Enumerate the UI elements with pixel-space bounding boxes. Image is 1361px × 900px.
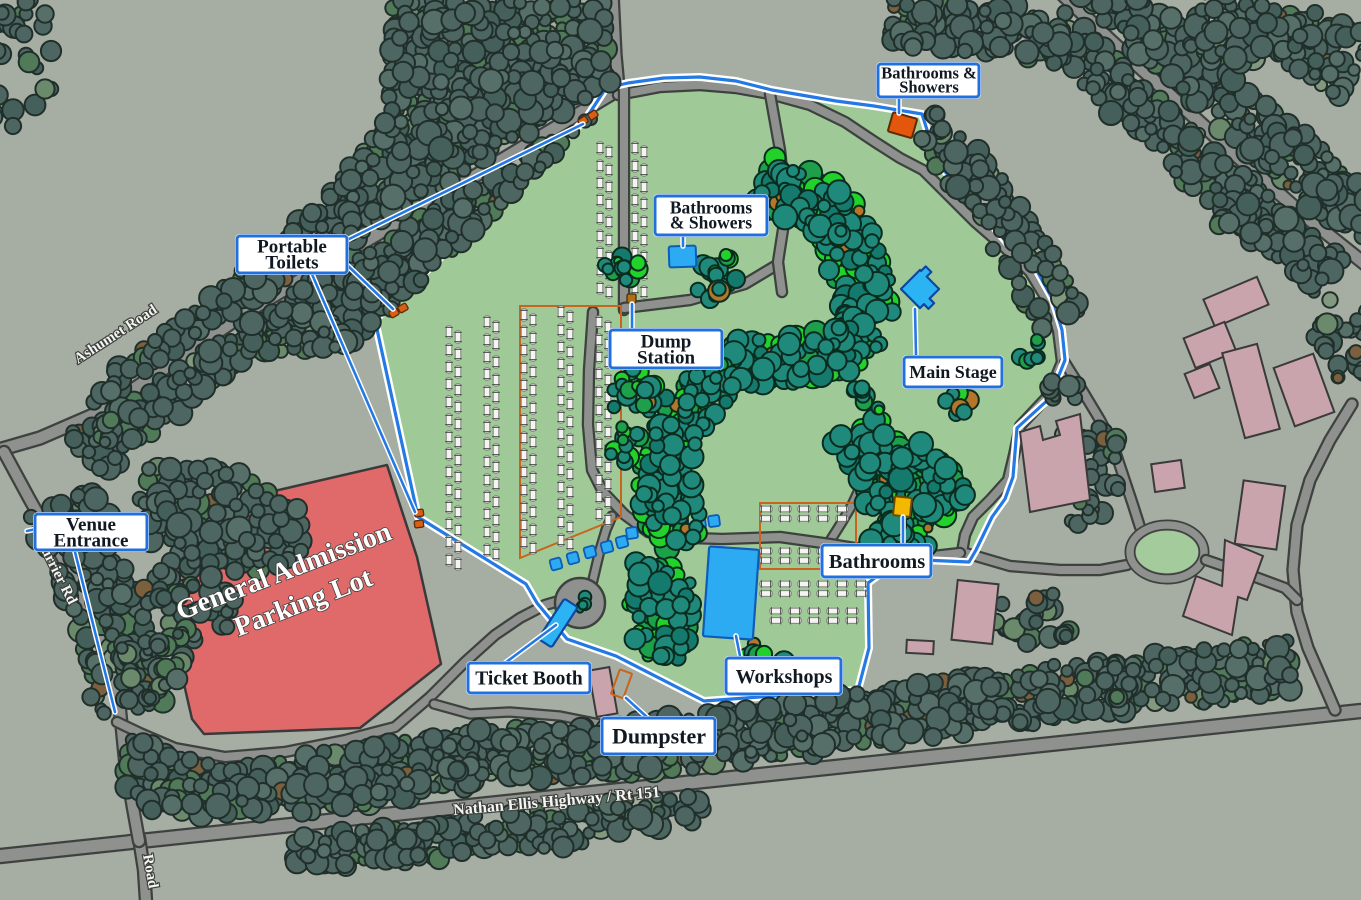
- svg-text:Bathrooms: Bathrooms: [829, 551, 925, 573]
- svg-text:Main Stage: Main Stage: [909, 362, 997, 382]
- svg-text:Showers: Showers: [899, 78, 959, 97]
- svg-text:Ticket Booth: Ticket Booth: [475, 669, 583, 690]
- svg-text:Workshops: Workshops: [736, 666, 833, 688]
- svg-text:& Showers: & Showers: [670, 213, 752, 233]
- svg-text:Station: Station: [637, 348, 696, 369]
- svg-text:Entrance: Entrance: [54, 531, 129, 552]
- svg-text:Dumpster: Dumpster: [612, 724, 706, 749]
- svg-text:Toilets: Toilets: [265, 253, 318, 274]
